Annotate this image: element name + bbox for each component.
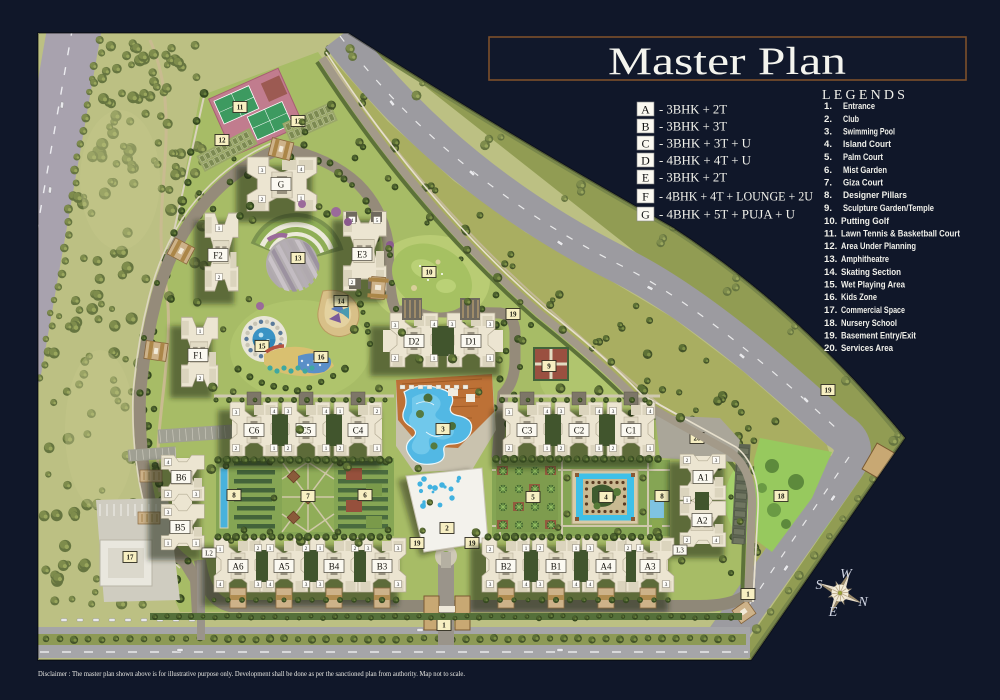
svg-text:1: 1 <box>325 446 328 452</box>
svg-text:1: 1 <box>598 446 601 452</box>
svg-text:E: E <box>828 605 838 620</box>
svg-text:2: 2 <box>351 280 354 286</box>
svg-text:4: 4 <box>589 582 592 588</box>
svg-text:1.: 1. <box>824 101 832 112</box>
svg-text:3: 3 <box>367 546 370 552</box>
svg-text:3: 3 <box>715 458 718 464</box>
svg-text:6.: 6. <box>824 165 832 176</box>
svg-text:19.: 19. <box>824 331 837 342</box>
svg-text:2: 2 <box>686 538 689 544</box>
svg-text:1: 1 <box>575 546 578 552</box>
svg-text:8: 8 <box>232 492 236 500</box>
svg-text:4: 4 <box>715 538 718 544</box>
svg-text:3: 3 <box>261 168 264 174</box>
svg-text:C1: C1 <box>626 425 637 435</box>
svg-text:4: 4 <box>649 409 652 415</box>
svg-text:N: N <box>857 595 868 610</box>
svg-text:17.: 17. <box>824 305 837 316</box>
svg-text:A1: A1 <box>698 472 709 482</box>
svg-text:2: 2 <box>354 546 357 552</box>
svg-text:1: 1 <box>269 546 272 552</box>
svg-text:3: 3 <box>560 409 563 415</box>
svg-text:A2: A2 <box>697 515 708 525</box>
svg-text:C6: C6 <box>249 425 260 435</box>
svg-text:L3: L3 <box>676 547 684 555</box>
svg-text:10: 10 <box>426 269 434 277</box>
svg-text:- 3BHK + 3T: - 3BHK + 3T <box>659 120 727 134</box>
svg-text:Wet Playing Area: Wet Playing Area <box>841 280 906 291</box>
svg-text:Services Area: Services Area <box>841 343 894 354</box>
svg-text:12.: 12. <box>824 241 837 252</box>
svg-text:2: 2 <box>218 275 221 281</box>
svg-text:2: 2 <box>686 458 689 464</box>
svg-text:15.: 15. <box>824 280 837 291</box>
svg-text:3: 3 <box>665 582 668 588</box>
svg-text:C2: C2 <box>574 425 585 435</box>
svg-text:G: G <box>278 179 285 189</box>
svg-text:3.: 3. <box>824 127 832 138</box>
svg-text:1: 1 <box>746 591 750 599</box>
svg-text:2: 2 <box>627 546 630 552</box>
svg-text:F1: F1 <box>193 350 203 360</box>
svg-text:Basement Entry/Exit: Basement Entry/Exit <box>841 331 917 342</box>
svg-text:C3: C3 <box>522 425 533 435</box>
svg-text:18.: 18. <box>824 318 837 329</box>
svg-text:13: 13 <box>295 255 303 263</box>
svg-text:4: 4 <box>269 582 272 588</box>
svg-text:4: 4 <box>219 582 222 588</box>
svg-text:7.: 7. <box>824 178 832 189</box>
svg-text:2: 2 <box>167 492 170 498</box>
svg-text:4: 4 <box>604 494 608 502</box>
svg-text:3: 3 <box>589 546 592 552</box>
svg-text:3: 3 <box>489 322 492 328</box>
svg-text:- 4BHK + 4T + LOUNGE + 2U: - 4BHK + 4T + LOUNGE + 2U <box>659 190 813 204</box>
svg-text:2: 2 <box>612 446 615 452</box>
svg-text:Lawn Tennis & Basketball Court: Lawn Tennis & Basketball Court <box>841 229 961 240</box>
svg-text:3: 3 <box>287 409 290 415</box>
svg-text:4: 4 <box>598 409 601 415</box>
svg-text:D2: D2 <box>409 336 420 346</box>
svg-text:7: 7 <box>306 493 310 501</box>
svg-text:1: 1 <box>546 446 549 452</box>
svg-text:11.: 11. <box>824 229 837 240</box>
svg-text:4: 4 <box>273 409 276 415</box>
svg-text:3: 3 <box>397 582 400 588</box>
svg-text:4: 4 <box>575 582 578 588</box>
svg-text:Commercial Space: Commercial Space <box>841 305 905 316</box>
svg-text:11: 11 <box>237 104 244 112</box>
svg-text:2: 2 <box>339 446 342 452</box>
svg-text:1: 1 <box>639 546 642 552</box>
svg-text:B4: B4 <box>329 561 340 571</box>
svg-text:1: 1 <box>376 446 379 452</box>
svg-text:9: 9 <box>547 363 551 371</box>
svg-text:- 3BHK + 2T: - 3BHK + 2T <box>659 171 727 185</box>
svg-text:2: 2 <box>560 446 563 452</box>
svg-text:1: 1 <box>218 226 221 232</box>
svg-text:2: 2 <box>539 546 542 552</box>
svg-text:1: 1 <box>339 409 342 415</box>
svg-text:6: 6 <box>363 492 367 500</box>
svg-text:2: 2 <box>508 446 511 452</box>
svg-text:2: 2 <box>489 547 492 553</box>
svg-text:1: 1 <box>649 446 652 452</box>
svg-text:1: 1 <box>195 541 198 547</box>
svg-text:Entrance: Entrance <box>843 101 875 112</box>
svg-text:Putting Golf: Putting Golf <box>841 216 890 227</box>
svg-text:B: B <box>641 120 649 134</box>
svg-text:8.: 8. <box>824 190 832 201</box>
svg-text:B5: B5 <box>175 522 186 532</box>
svg-text:Nursery School: Nursery School <box>841 318 897 329</box>
svg-text:2: 2 <box>199 376 202 382</box>
svg-text:3: 3 <box>235 410 238 416</box>
svg-text:D1: D1 <box>466 336 477 346</box>
svg-text:3: 3 <box>441 426 445 434</box>
svg-text:C: C <box>641 137 649 151</box>
svg-text:3: 3 <box>539 582 542 588</box>
svg-text:2: 2 <box>257 546 260 552</box>
svg-text:Area Under Planning: Area Under Planning <box>841 241 916 252</box>
svg-text:14.: 14. <box>824 267 837 278</box>
svg-text:4: 4 <box>167 460 170 466</box>
svg-text:4.: 4. <box>824 139 832 150</box>
svg-text:16: 16 <box>318 354 326 362</box>
svg-text:1: 1 <box>167 541 170 547</box>
svg-text:Kids Zone: Kids Zone <box>841 292 877 303</box>
svg-text:G: G <box>641 208 650 222</box>
svg-text:3: 3 <box>305 582 308 588</box>
svg-text:3: 3 <box>508 410 511 416</box>
svg-text:A3: A3 <box>645 561 656 571</box>
svg-text:19: 19 <box>510 311 518 319</box>
svg-text:3: 3 <box>612 409 615 415</box>
svg-text:3: 3 <box>394 323 397 329</box>
svg-text:19: 19 <box>414 540 422 548</box>
svg-text:3: 3 <box>319 582 322 588</box>
svg-text:B3: B3 <box>377 561 388 571</box>
svg-text:1: 1 <box>319 546 322 552</box>
svg-text:A: A <box>641 103 650 117</box>
svg-text:4: 4 <box>546 409 549 415</box>
svg-text:16.: 16. <box>824 292 837 303</box>
svg-text:B1: B1 <box>551 561 562 571</box>
svg-text:4: 4 <box>433 322 436 328</box>
svg-text:3: 3 <box>195 492 198 498</box>
svg-text:E: E <box>642 171 649 185</box>
svg-text:Club: Club <box>843 114 859 125</box>
svg-text:2.: 2. <box>824 114 832 125</box>
svg-text:2: 2 <box>287 446 290 452</box>
svg-text:- 3BHK + 3T + U: - 3BHK + 3T + U <box>659 137 751 151</box>
svg-text:Swimming Pool: Swimming Pool <box>843 127 895 138</box>
svg-text:A6: A6 <box>233 561 244 571</box>
svg-text:A5: A5 <box>279 561 290 571</box>
svg-text:17: 17 <box>127 554 135 562</box>
svg-text:Giza Court: Giza Court <box>843 178 884 189</box>
svg-text:10.: 10. <box>824 216 837 227</box>
svg-text:5: 5 <box>376 218 379 224</box>
svg-text:A4: A4 <box>601 561 612 571</box>
svg-text:Mist Garden: Mist Garden <box>843 165 887 176</box>
svg-text:20.: 20. <box>824 343 837 354</box>
svg-text:19: 19 <box>825 387 833 395</box>
svg-text:Island Court: Island Court <box>843 139 892 150</box>
svg-text:W: W <box>840 567 853 582</box>
svg-text:Sculpture Garden/Temple: Sculpture Garden/Temple <box>843 203 934 214</box>
svg-text:3: 3 <box>257 582 260 588</box>
svg-text:1: 1 <box>686 498 689 504</box>
svg-text:- 4BHK + 5T + PUJA + U: - 4BHK + 5T + PUJA + U <box>659 208 795 222</box>
svg-text:1: 1 <box>489 356 492 362</box>
svg-text:8: 8 <box>660 493 664 501</box>
svg-text:Designer Pillars: Designer Pillars <box>843 190 907 201</box>
svg-text:4: 4 <box>525 582 528 588</box>
svg-text:Skating Section: Skating Section <box>841 267 901 278</box>
svg-text:B2: B2 <box>501 561 512 571</box>
svg-text:2: 2 <box>394 356 397 362</box>
svg-text:1: 1 <box>273 446 276 452</box>
svg-text:Palm Court: Palm Court <box>843 152 884 163</box>
svg-text:1: 1 <box>525 546 528 552</box>
svg-text:3: 3 <box>397 546 400 552</box>
svg-text:13.: 13. <box>824 254 837 265</box>
svg-text:F: F <box>642 190 649 204</box>
svg-text:B6: B6 <box>176 472 187 482</box>
svg-text:4: 4 <box>325 409 328 415</box>
svg-text:2: 2 <box>445 525 449 533</box>
svg-text:- 4BHK + 4T + U: - 4BHK + 4T + U <box>659 154 751 168</box>
svg-text:Amphitheatre: Amphitheatre <box>841 254 889 265</box>
svg-text:2: 2 <box>376 409 379 415</box>
svg-text:9.: 9. <box>824 203 832 214</box>
svg-text:S: S <box>816 578 823 593</box>
svg-text:2: 2 <box>235 446 238 452</box>
svg-text:1: 1 <box>433 356 436 362</box>
svg-text:1: 1 <box>442 622 446 630</box>
svg-text:1: 1 <box>199 329 202 335</box>
svg-text:4: 4 <box>300 167 303 173</box>
svg-text:15: 15 <box>259 343 267 351</box>
svg-text:5.: 5. <box>824 152 832 163</box>
svg-text:F2: F2 <box>213 250 223 260</box>
svg-text:L2: L2 <box>205 550 213 558</box>
svg-text:D: D <box>641 154 650 168</box>
svg-text:- 3BHK + 2T: - 3BHK + 2T <box>659 103 727 117</box>
svg-text:12: 12 <box>219 137 227 145</box>
svg-text:18: 18 <box>778 493 786 501</box>
svg-text:2: 2 <box>261 197 264 203</box>
svg-text:1: 1 <box>219 547 222 553</box>
svg-text:3: 3 <box>451 322 454 328</box>
svg-text:Disclaimer : The master plan s: Disclaimer : The master plan shown above… <box>38 669 465 678</box>
svg-text:3: 3 <box>489 582 492 588</box>
svg-text:2: 2 <box>305 546 308 552</box>
svg-text:C4: C4 <box>353 425 364 435</box>
svg-text:Master Plan: Master Plan <box>608 40 846 83</box>
svg-text:3: 3 <box>167 510 170 516</box>
svg-text:5: 5 <box>531 494 535 502</box>
svg-text:E3: E3 <box>357 249 367 259</box>
